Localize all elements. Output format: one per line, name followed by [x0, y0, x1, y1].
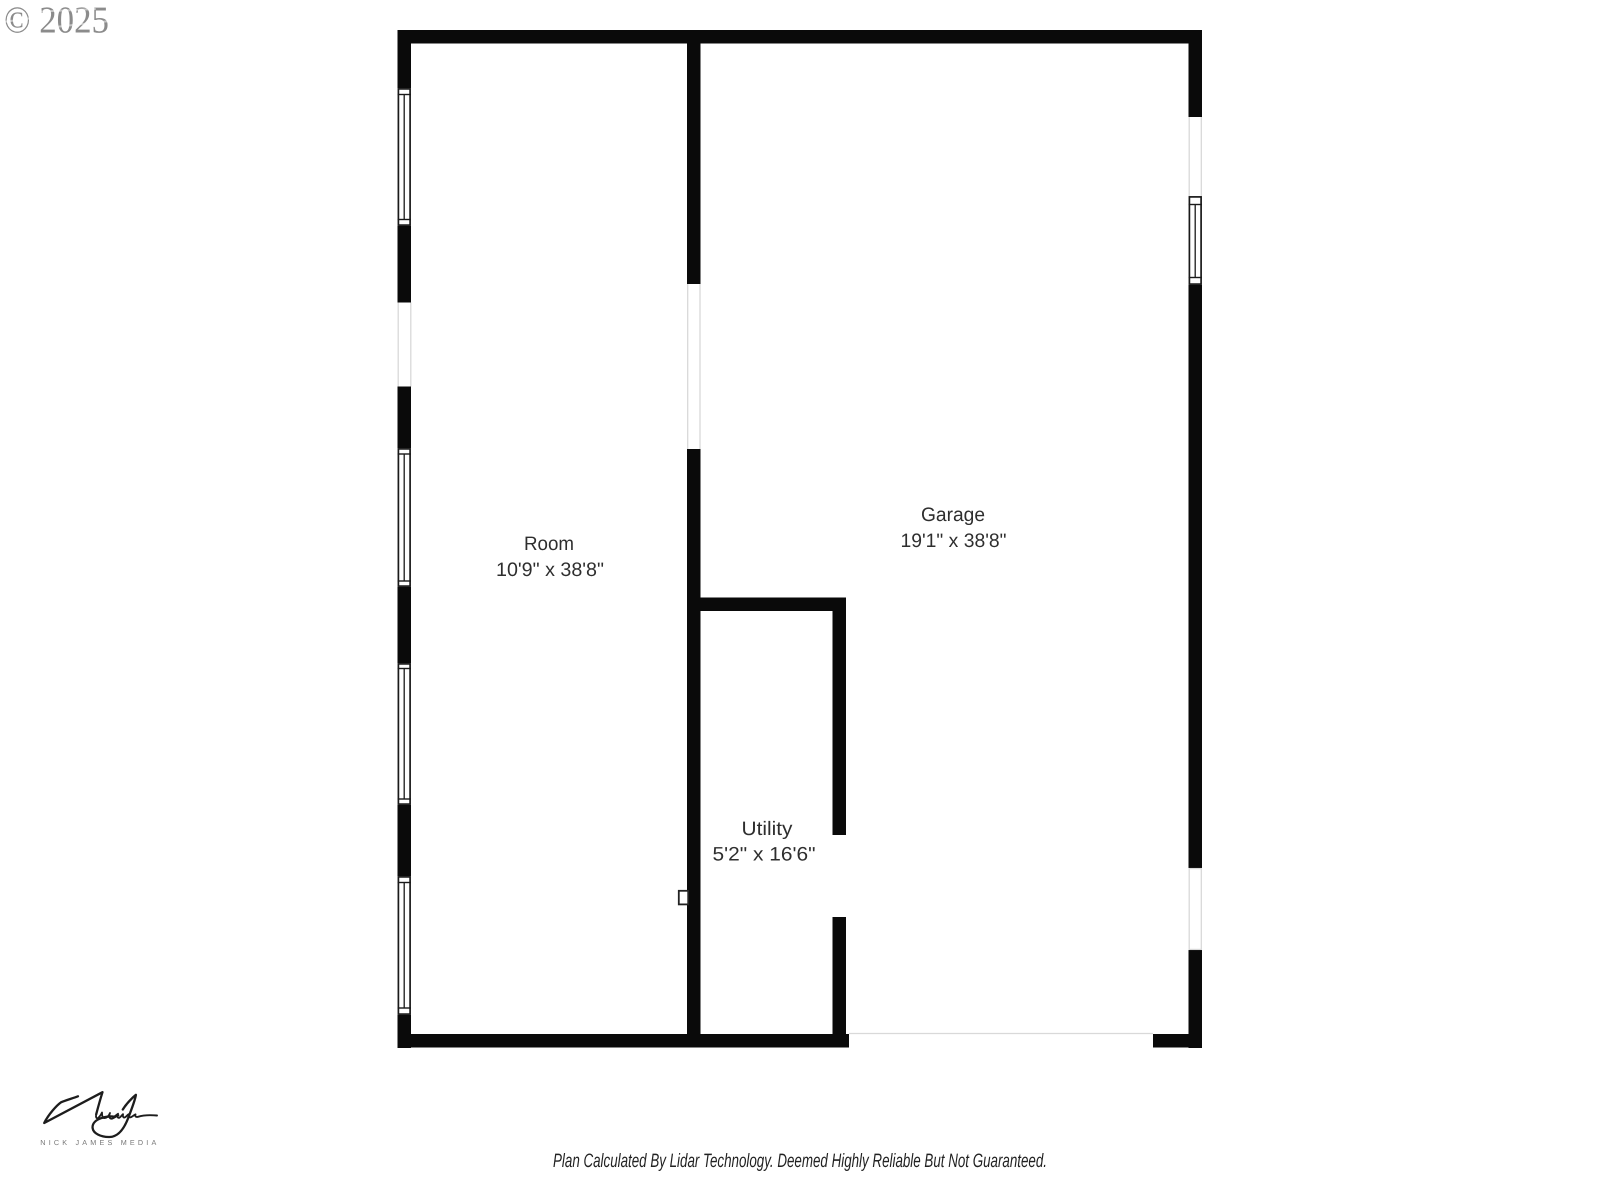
- svg-text:10'9" x 38'8": 10'9" x 38'8": [496, 559, 604, 581]
- svg-text:NICK JAMES MEDIA: NICK JAMES MEDIA: [40, 1138, 156, 1147]
- svg-text:19'1" x 38'8": 19'1" x 38'8": [901, 530, 1007, 552]
- svg-text:5'2" x 16'6": 5'2" x 16'6": [713, 844, 816, 866]
- svg-text:Room: Room: [524, 533, 574, 555]
- svg-text:Plan Calculated By Lidar Techn: Plan Calculated By Lidar Technology. Dee…: [553, 1150, 1047, 1172]
- svg-text:Utility: Utility: [742, 818, 793, 840]
- svg-text:Garage: Garage: [921, 504, 985, 526]
